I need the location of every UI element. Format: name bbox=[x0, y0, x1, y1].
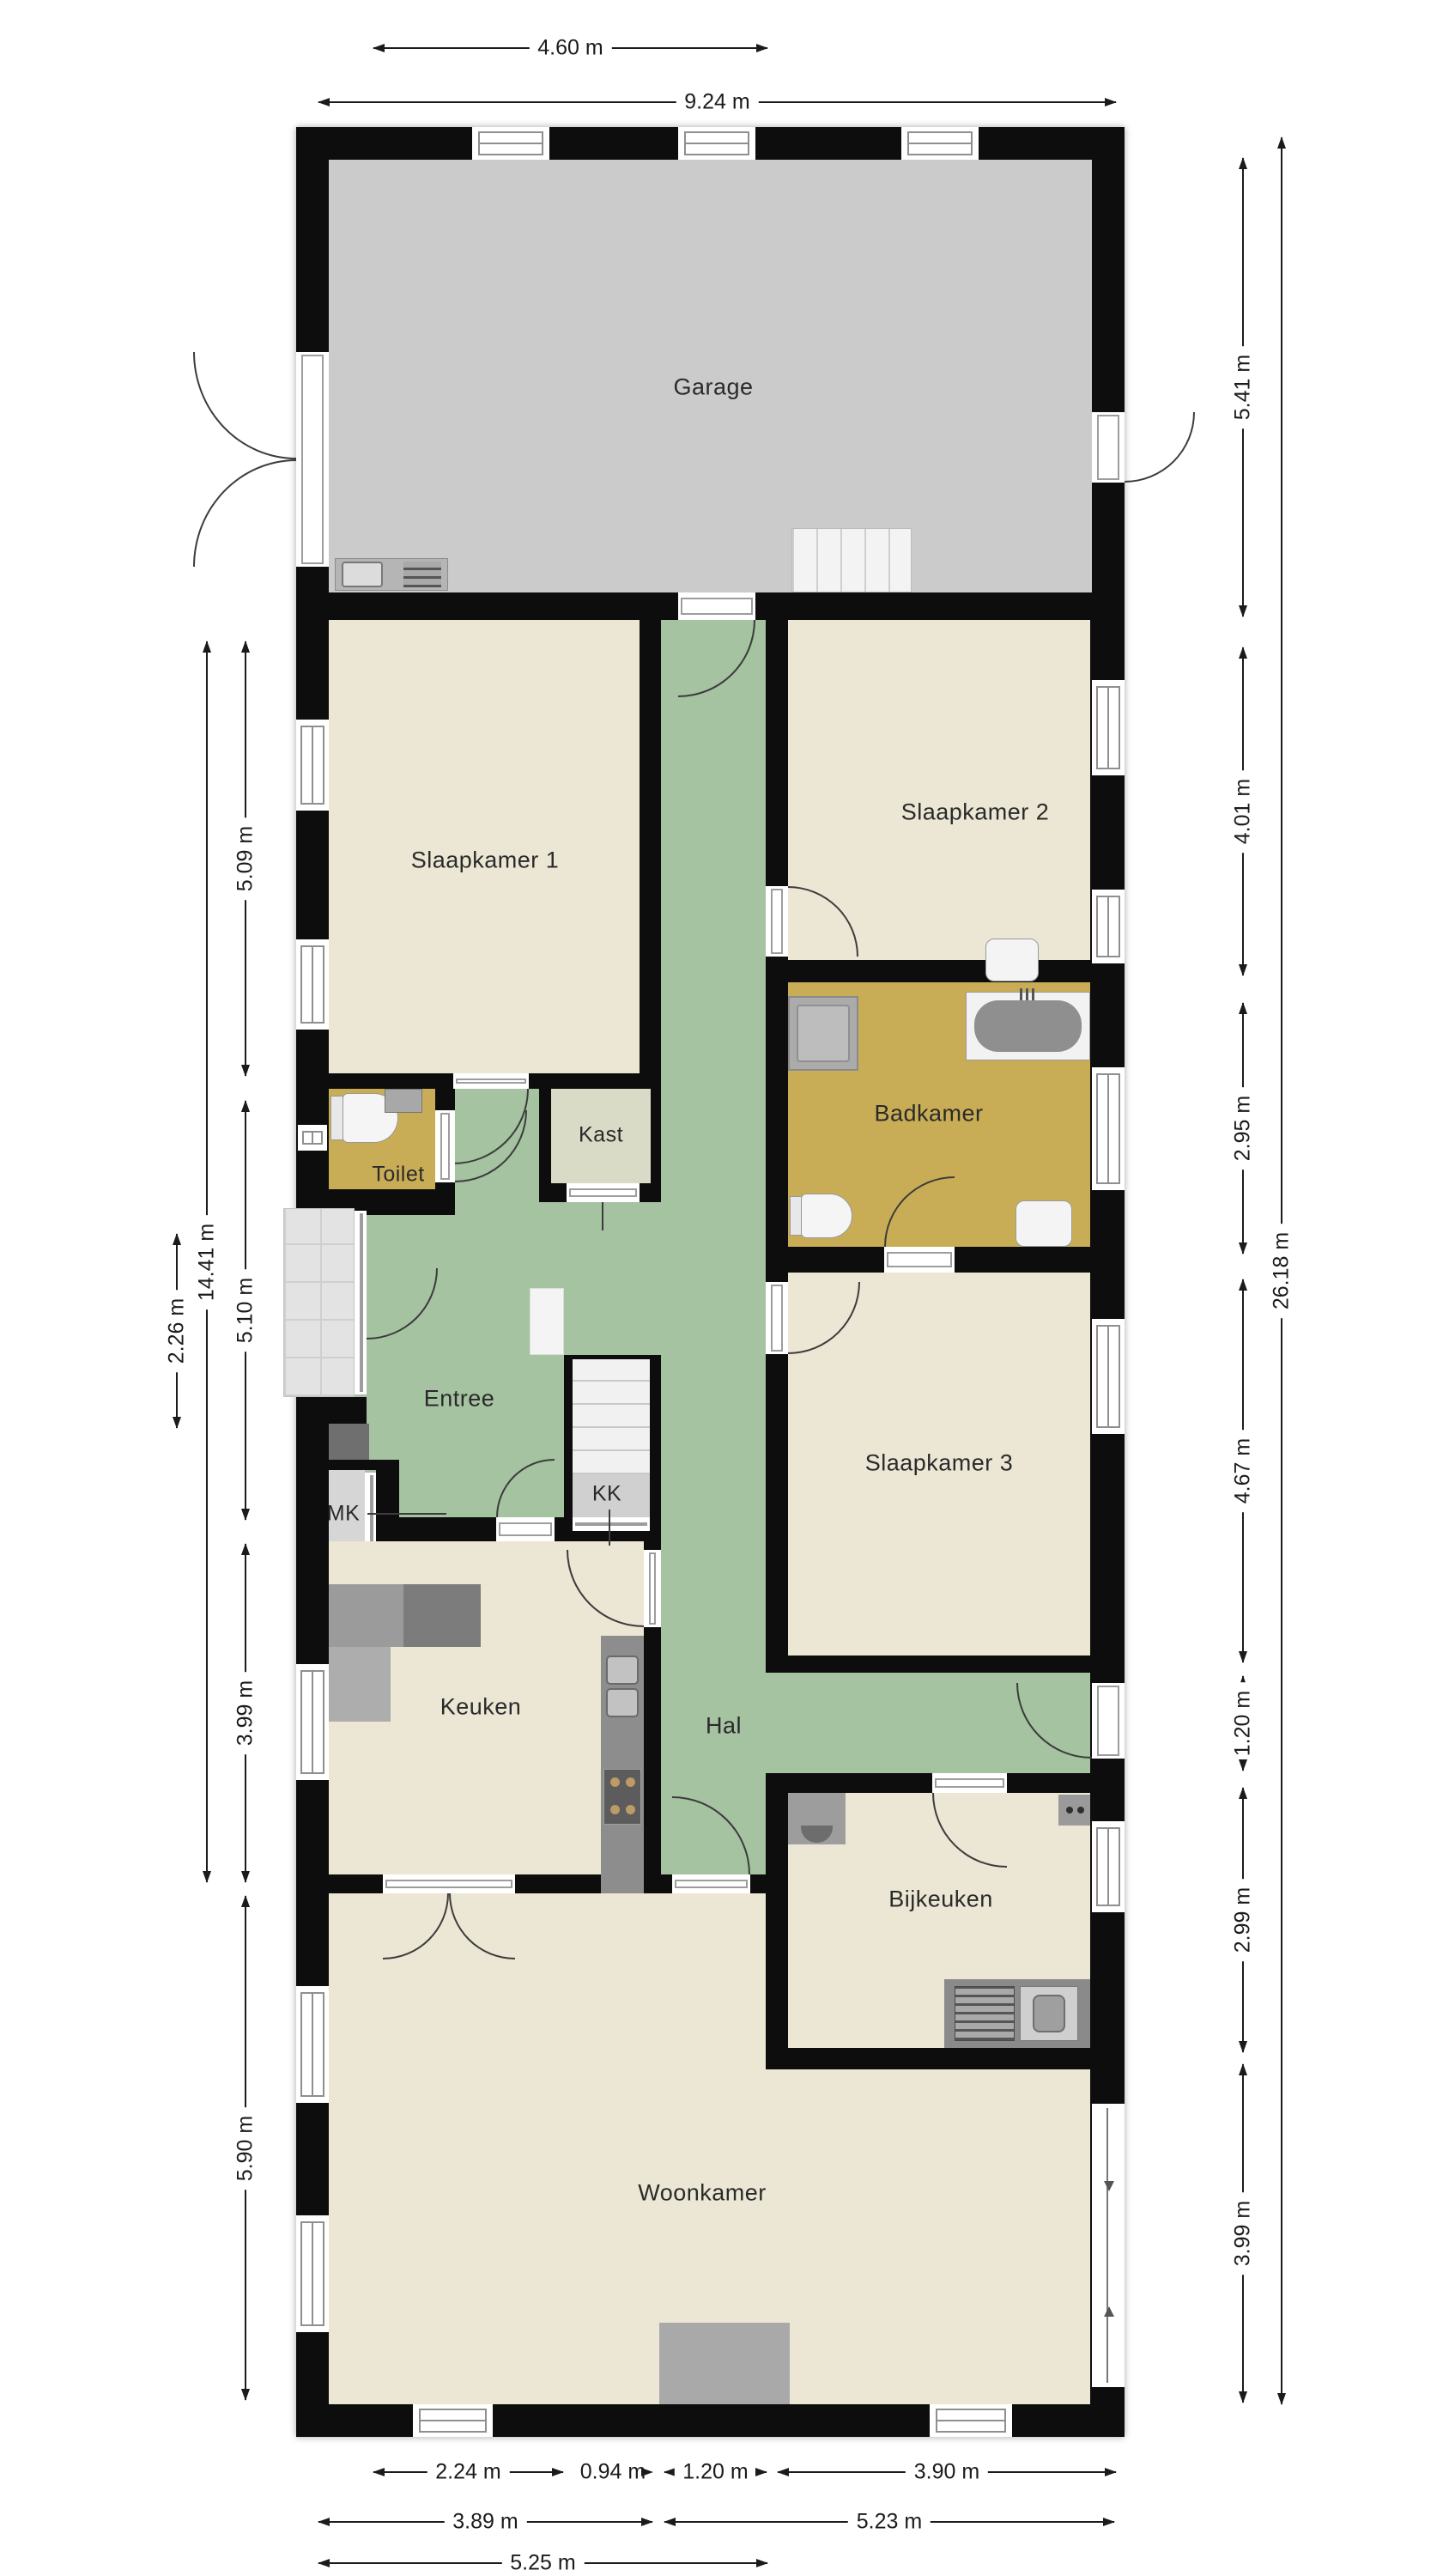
dim-right-401: 4.01 m bbox=[1242, 647, 1244, 975]
garage-side-door bbox=[1092, 412, 1125, 483]
toilet-door bbox=[435, 1110, 455, 1182]
dim-right-467: 4.67 m bbox=[1242, 1279, 1244, 1662]
staircase bbox=[573, 1359, 650, 1474]
room-label-kast: Kast bbox=[579, 1123, 623, 1148]
hallway-corridor bbox=[661, 620, 766, 1874]
room-label-keuken: Keuken bbox=[440, 1694, 522, 1721]
wall-socket bbox=[1058, 1795, 1090, 1826]
dim-right-2618: 26.18 m bbox=[1281, 137, 1282, 2404]
sliding-door-arrow-up bbox=[1104, 2301, 1114, 2317]
dim-left-1441: 14.41 m bbox=[206, 641, 208, 1882]
garage-side-door-arc bbox=[1125, 412, 1195, 483]
garage-window-2 bbox=[678, 127, 755, 160]
kast-door-mark bbox=[602, 1202, 603, 1230]
bedroom2-basin bbox=[985, 939, 1039, 981]
keuken-woonkamer-double-door bbox=[383, 1874, 515, 1893]
dim-bottom-525: 5.25 m bbox=[318, 2562, 767, 2564]
dim-left-399: 3.99 m bbox=[245, 1544, 246, 1882]
dim-left-226: 2.26 m bbox=[176, 1234, 178, 1428]
woonkamer-window-bottom-2 bbox=[930, 2404, 1012, 2437]
kitchen-counter-left bbox=[329, 1647, 391, 1722]
stove-burners bbox=[610, 1777, 620, 1787]
woonkamer-window-left-1 bbox=[296, 1986, 329, 2103]
front-door-frame bbox=[355, 1211, 367, 1394]
dim-right-541: 5.41 m bbox=[1242, 158, 1244, 617]
room-label-bijkeuken: Bijkeuken bbox=[888, 1886, 993, 1913]
sliding-door-line bbox=[1106, 2108, 1108, 2383]
room-label-mk: MK bbox=[327, 1502, 361, 1527]
hal-bijkeuken-door bbox=[932, 1773, 1007, 1793]
sliding-door bbox=[1092, 2104, 1125, 2387]
kk-door-frame bbox=[573, 1517, 650, 1531]
stove bbox=[603, 1769, 641, 1825]
bijkeuken-window bbox=[1092, 1821, 1125, 1912]
dim-bottom-120: 1.20 m bbox=[664, 2471, 767, 2473]
room-label-hal: Hal bbox=[706, 1713, 742, 1740]
dim-right-399: 3.99 m bbox=[1242, 2064, 1244, 2403]
dim-right-120: 1.20 m bbox=[1242, 1676, 1244, 1771]
dim-bottom-523: 5.23 m bbox=[664, 2521, 1114, 2523]
shower-tray bbox=[797, 1005, 850, 1062]
dim-bottom-094: 0.94 m bbox=[573, 2471, 652, 2473]
garage-window-1 bbox=[472, 127, 549, 160]
dryer bbox=[955, 1986, 1015, 2041]
room-label-badkamer: Badkamer bbox=[874, 1101, 983, 1127]
entree-keuken-door bbox=[496, 1517, 555, 1541]
keuken-hal-door bbox=[644, 1550, 661, 1627]
room-label-entree: Entree bbox=[424, 1386, 495, 1413]
room-woonkamer-right bbox=[766, 2069, 1090, 2404]
bedroom2-window-2 bbox=[1092, 890, 1125, 963]
dim-top-924: 9.24 m bbox=[318, 101, 1116, 103]
kitchen-counter-top-dark bbox=[403, 1584, 481, 1647]
room-label-slaapkamer2: Slaapkamer 2 bbox=[901, 799, 1050, 826]
badkamer-sink bbox=[1016, 1200, 1072, 1247]
wall-socket-dots bbox=[1066, 1807, 1073, 1814]
kitchen-sink-2 bbox=[606, 1688, 639, 1717]
bathtub-faucet bbox=[1026, 988, 1028, 1000]
kk-leader-line bbox=[609, 1510, 610, 1546]
room-label-garage: Garage bbox=[673, 374, 753, 401]
wall-cap bbox=[296, 1397, 367, 1424]
woonkamer-window-left-2 bbox=[296, 2215, 329, 2332]
kitchen-sink bbox=[606, 1656, 639, 1685]
bedroom1-window-1 bbox=[296, 720, 329, 811]
fireplace bbox=[659, 2323, 790, 2404]
room-label-toilet: Toilet bbox=[372, 1163, 424, 1188]
badkamer-window bbox=[1092, 1067, 1125, 1190]
garage-hal-door bbox=[678, 592, 755, 620]
garage-door-arc-bottom bbox=[193, 459, 296, 567]
dim-bottom-389: 3.89 m bbox=[318, 2521, 652, 2523]
mk-wall-top bbox=[329, 1460, 399, 1470]
sliding-door-arrow-down bbox=[1104, 2181, 1114, 2196]
dim-bottom-224: 2.24 m bbox=[373, 2471, 563, 2473]
floorplan: Garage Slaapkamer 1 Slaapkamer 2 Badkame… bbox=[0, 0, 1449, 2576]
dim-right-295: 2.95 m bbox=[1242, 1003, 1244, 1254]
dim-right-299: 2.99 m bbox=[1242, 1788, 1244, 2052]
badkamer-door bbox=[884, 1247, 955, 1273]
toilet-sink bbox=[385, 1089, 422, 1113]
room-label-slaapkamer3: Slaapkamer 3 bbox=[865, 1450, 1014, 1477]
woonkamer-window-bottom-1 bbox=[413, 2404, 493, 2437]
bedroom1-door bbox=[453, 1073, 529, 1089]
badkamer-toilet-bowl bbox=[801, 1194, 852, 1238]
garage-window-3 bbox=[901, 127, 979, 160]
garage-sink bbox=[342, 562, 383, 587]
bedroom1-window-2 bbox=[296, 939, 329, 1030]
dim-left-509: 5.09 m bbox=[245, 641, 246, 1076]
bedroom3-door bbox=[766, 1282, 788, 1354]
room-label-slaapkamer1: Slaapkamer 1 bbox=[411, 848, 560, 874]
dim-left-590: 5.90 m bbox=[245, 1896, 246, 2400]
hal-woonkamer-door bbox=[672, 1874, 750, 1893]
garage-vent bbox=[403, 562, 441, 587]
garage-stairs bbox=[791, 528, 912, 592]
bathtub-basin bbox=[974, 1000, 1082, 1052]
bedroom3-window bbox=[1092, 1319, 1125, 1434]
mk-leader-line bbox=[367, 1513, 446, 1515]
room-label-kk: KK bbox=[592, 1482, 621, 1507]
washing-machine-door bbox=[1033, 1995, 1065, 2032]
stairs-landing bbox=[530, 1288, 564, 1355]
garage-double-door bbox=[296, 352, 329, 567]
bedroom2-window-1 bbox=[1092, 680, 1125, 775]
back-door bbox=[1092, 1683, 1125, 1759]
doormat bbox=[329, 1424, 369, 1460]
dim-top-460: 4.60 m bbox=[373, 47, 767, 49]
bedroom2-door bbox=[766, 886, 788, 957]
room-label-woonkamer: Woonkamer bbox=[638, 2180, 767, 2207]
toilet-window bbox=[298, 1125, 327, 1151]
keuken-window bbox=[296, 1664, 329, 1780]
garage-door-arc-top bbox=[193, 352, 296, 459]
porch-tiles bbox=[283, 1208, 355, 1397]
dim-bottom-390: 3.90 m bbox=[778, 2471, 1116, 2473]
kast-door-frame bbox=[567, 1183, 640, 1202]
dim-left-510: 5.10 m bbox=[245, 1101, 246, 1520]
